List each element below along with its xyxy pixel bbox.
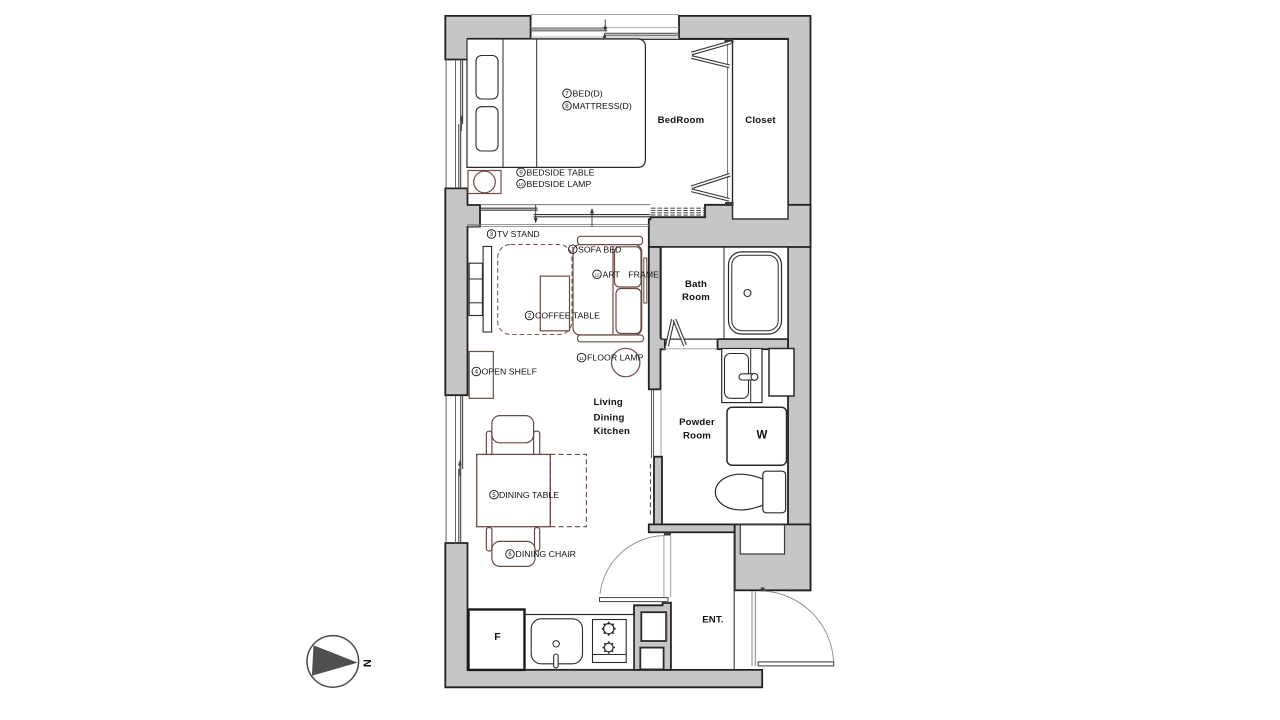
svg-text:MATTRESS(D): MATTRESS(D) bbox=[573, 101, 632, 111]
svg-text:Living: Living bbox=[594, 397, 623, 408]
svg-text:FRAME: FRAME bbox=[628, 269, 659, 279]
svg-text:10: 10 bbox=[518, 182, 524, 187]
svg-text:12: 12 bbox=[594, 273, 600, 278]
svg-text:N: N bbox=[361, 659, 373, 667]
svg-text:TV STAND: TV STAND bbox=[497, 229, 540, 239]
svg-text:1: 1 bbox=[571, 246, 575, 253]
svg-text:Kitchen: Kitchen bbox=[594, 426, 631, 437]
svg-text:SOFA BED: SOFA BED bbox=[578, 244, 621, 254]
svg-text:DINING TABLE: DINING TABLE bbox=[499, 490, 559, 500]
svg-text:BED(D): BED(D) bbox=[573, 88, 603, 98]
svg-text:Room: Room bbox=[682, 292, 710, 303]
svg-text:ART: ART bbox=[603, 269, 621, 279]
svg-text:Bath: Bath bbox=[685, 279, 707, 290]
svg-text:ENT.: ENT. bbox=[702, 615, 724, 626]
svg-text:W: W bbox=[756, 430, 767, 442]
svg-text:DINING CHAIR: DINING CHAIR bbox=[516, 549, 576, 559]
svg-text:5: 5 bbox=[492, 492, 496, 499]
svg-text:2: 2 bbox=[528, 313, 532, 320]
svg-text:BEDSIDE TABLE: BEDSIDE TABLE bbox=[527, 167, 595, 177]
svg-text:11: 11 bbox=[579, 356, 584, 361]
svg-text:BedRoom: BedRoom bbox=[658, 115, 705, 126]
svg-text:9: 9 bbox=[519, 170, 523, 177]
svg-text:F: F bbox=[494, 631, 501, 643]
svg-text:OPEN SHELF: OPEN SHELF bbox=[482, 367, 538, 377]
svg-text:Powder: Powder bbox=[679, 417, 715, 428]
svg-text:8: 8 bbox=[565, 103, 569, 110]
svg-text:Closet: Closet bbox=[745, 115, 776, 126]
svg-text:6: 6 bbox=[508, 551, 512, 558]
svg-text:Dining: Dining bbox=[594, 412, 625, 423]
svg-text:3: 3 bbox=[490, 231, 494, 238]
svg-text:BEDSIDE LAMP: BEDSIDE LAMP bbox=[527, 179, 592, 189]
svg-text:FLOOR LAMP: FLOOR LAMP bbox=[587, 353, 644, 363]
svg-text:7: 7 bbox=[565, 91, 569, 98]
svg-text:COFFEE TABLE: COFFEE TABLE bbox=[535, 311, 600, 321]
svg-text:Room: Room bbox=[683, 431, 711, 442]
svg-text:4: 4 bbox=[475, 369, 479, 376]
